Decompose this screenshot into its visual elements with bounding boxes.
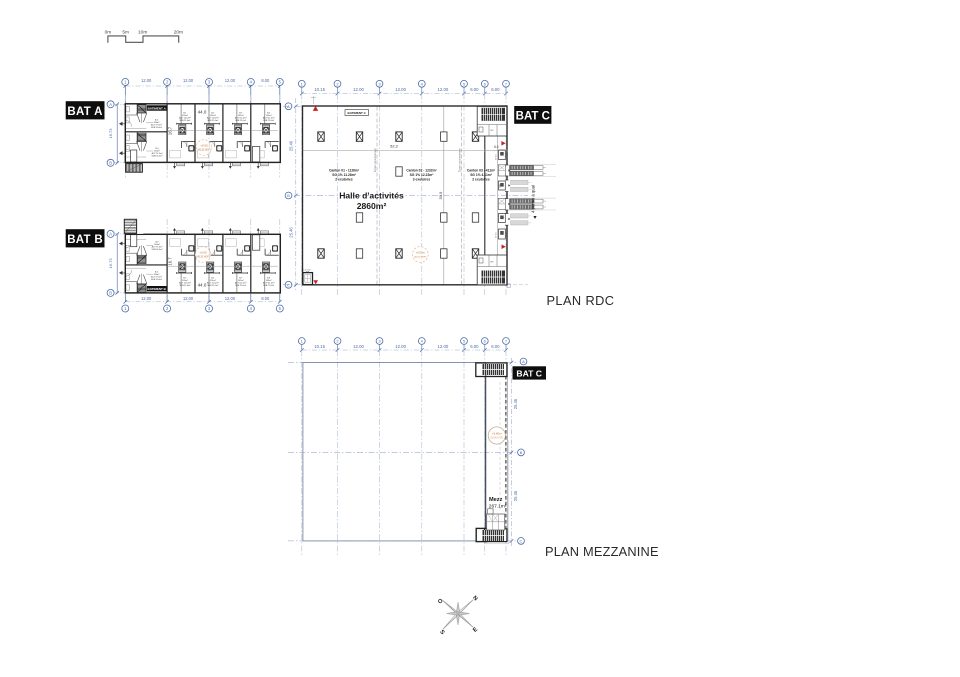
svg-text:12.00: 12.00 bbox=[141, 78, 152, 83]
svg-text:BATIMENT C: BATIMENT C bbox=[348, 111, 367, 115]
svg-text:2860m²: 2860m² bbox=[357, 201, 387, 211]
svg-text:BAT C: BAT C bbox=[516, 111, 550, 123]
svg-text:16.7: 16.7 bbox=[168, 257, 173, 266]
svg-text:SDB 21.0m²: SDB 21.0m² bbox=[235, 119, 246, 122]
svg-text:SDB 31.0m²: SDB 31.0m² bbox=[152, 248, 163, 251]
svg-text:5m: 5m bbox=[122, 30, 129, 36]
svg-text:12.00: 12.00 bbox=[183, 296, 194, 301]
svg-text:12.00: 12.00 bbox=[395, 87, 406, 92]
svg-text:10m: 10m bbox=[138, 30, 147, 36]
svg-text:SDB 31.0m²: SDB 31.0m² bbox=[151, 126, 162, 129]
svg-text:6.00: 6.00 bbox=[491, 87, 500, 92]
svg-text:12.00: 12.00 bbox=[225, 78, 236, 83]
svg-text:12.00: 12.00 bbox=[183, 78, 194, 83]
svg-text:B: B bbox=[109, 161, 112, 166]
svg-text:B: B bbox=[520, 450, 523, 455]
svg-text:6.00: 6.00 bbox=[470, 87, 479, 92]
svg-text:44.0: 44.0 bbox=[198, 283, 207, 288]
svg-text:16.73: 16.73 bbox=[108, 258, 113, 269]
svg-text:20m: 20m bbox=[174, 30, 183, 36]
svg-text:12.00: 12.00 bbox=[395, 344, 406, 349]
svg-text:(50.80 NGF): (50.80 NGF) bbox=[490, 438, 503, 440]
svg-text:PLAN RDC: PLAN RDC bbox=[547, 293, 615, 308]
svg-text:(45.20 NGF): (45.20 NGF) bbox=[197, 149, 210, 152]
svg-text:8.00: 8.00 bbox=[261, 296, 270, 301]
svg-text:267.1m²: 267.1m² bbox=[489, 504, 507, 510]
svg-text:Mezz: Mezz bbox=[489, 497, 503, 503]
svg-text:SG 1% 12.22m²: SG 1% 12.22m² bbox=[410, 173, 435, 177]
svg-text:10.15: 10.15 bbox=[314, 87, 325, 92]
svg-text:SDB 21.0m²: SDB 21.0m² bbox=[207, 284, 218, 287]
svg-text:25.46: 25.46 bbox=[513, 398, 518, 409]
svg-text:6.00: 6.00 bbox=[470, 344, 479, 349]
svg-text:SDB 21.0m²: SDB 21.0m² bbox=[235, 284, 246, 287]
svg-text:12.00: 12.00 bbox=[225, 296, 236, 301]
svg-text:SG 1% 4.11m²: SG 1% 4.11m² bbox=[470, 173, 493, 177]
svg-text:BAT A: BAT A bbox=[67, 106, 102, 118]
svg-text:2 exutoires: 2 exutoires bbox=[472, 178, 490, 182]
svg-text:10.15: 10.15 bbox=[314, 344, 325, 349]
svg-text:WC: WC bbox=[490, 262, 494, 264]
svg-text:25.46: 25.46 bbox=[513, 490, 518, 501]
svg-text:4 portes à quai: 4 portes à quai bbox=[531, 185, 536, 213]
svg-text:Canton 02 - 1232m²: Canton 02 - 1232m² bbox=[406, 169, 437, 173]
svg-text:+5.60m: +5.60m bbox=[492, 431, 502, 435]
svg-text:A: A bbox=[109, 102, 112, 107]
svg-text:16.7: 16.7 bbox=[168, 126, 173, 135]
svg-text:25.46: 25.46 bbox=[289, 140, 294, 151]
svg-text:3 exutoires: 3 exutoires bbox=[413, 178, 431, 182]
svg-text:52.2: 52.2 bbox=[390, 144, 399, 149]
svg-text:SDB 31.0m²: SDB 31.0m² bbox=[151, 278, 162, 281]
svg-text:A: A bbox=[522, 359, 525, 364]
svg-text:B: B bbox=[287, 193, 290, 198]
svg-text:BAT C: BAT C bbox=[516, 369, 542, 379]
svg-text:SDB 21.0m²: SDB 21.0m² bbox=[263, 119, 274, 122]
svg-text:25.46: 25.46 bbox=[289, 227, 294, 238]
svg-text:LT 2.5: LT 2.5 bbox=[496, 153, 498, 159]
svg-text:A: A bbox=[109, 232, 112, 237]
svg-text:(45.20 NGF): (45.20 NGF) bbox=[414, 256, 426, 258]
svg-text:12.00: 12.00 bbox=[438, 87, 449, 92]
svg-text:SDB 21.0m²: SDB 21.0m² bbox=[207, 119, 218, 122]
svg-text:SG 1% 11.28m²: SG 1% 11.28m² bbox=[332, 173, 356, 177]
svg-text:6.0: 6.0 bbox=[494, 145, 499, 149]
svg-text:C: C bbox=[520, 539, 523, 544]
svg-text:SDB 31.0m²: SDB 31.0m² bbox=[152, 154, 163, 157]
svg-text:+0.00m: +0.00m bbox=[416, 251, 426, 255]
svg-text:BATIMENT A: BATIMENT A bbox=[148, 106, 167, 110]
svg-text:BAT B: BAT B bbox=[67, 234, 103, 246]
svg-text:LT 2.5: LT 2.5 bbox=[496, 231, 498, 237]
svg-text:+0.00: +0.00 bbox=[199, 251, 207, 255]
svg-text:SDB 21.0m²: SDB 21.0m² bbox=[179, 284, 190, 287]
svg-text:SDB 21.0m²: SDB 21.0m² bbox=[263, 284, 274, 287]
svg-text:12.00: 12.00 bbox=[438, 344, 449, 349]
svg-text:44.0: 44.0 bbox=[198, 110, 207, 115]
svg-text:8.00: 8.00 bbox=[261, 78, 270, 83]
svg-text:SDB 21.0m²: SDB 21.0m² bbox=[179, 119, 190, 122]
svg-text:50.9: 50.9 bbox=[438, 191, 443, 200]
svg-text:12.00: 12.00 bbox=[141, 296, 152, 301]
svg-text:+0.00: +0.00 bbox=[200, 144, 208, 148]
svg-text:PLAN MEZZANINE: PLAN MEZZANINE bbox=[545, 544, 659, 559]
svg-text:2 exutoires: 2 exutoires bbox=[335, 178, 353, 182]
svg-text:0m: 0m bbox=[105, 30, 112, 36]
svg-text:Canton 01 - 1126m²: Canton 01 - 1126m² bbox=[329, 169, 360, 173]
svg-text:Halle d'activités: Halle d'activités bbox=[339, 191, 404, 201]
svg-text:BATIMENT B: BATIMENT B bbox=[148, 287, 167, 291]
svg-text:16.73: 16.73 bbox=[108, 128, 113, 139]
svg-text:B: B bbox=[109, 291, 112, 296]
svg-text:12.00: 12.00 bbox=[353, 87, 364, 92]
svg-text:6.00: 6.00 bbox=[491, 344, 500, 349]
svg-text:WC: WC bbox=[490, 130, 494, 132]
svg-text:(45.20 NGF): (45.20 NGF) bbox=[196, 256, 209, 259]
svg-text:12.00: 12.00 bbox=[353, 344, 364, 349]
svg-text:Canton 03 - 411m²: Canton 03 - 411m² bbox=[467, 169, 496, 173]
